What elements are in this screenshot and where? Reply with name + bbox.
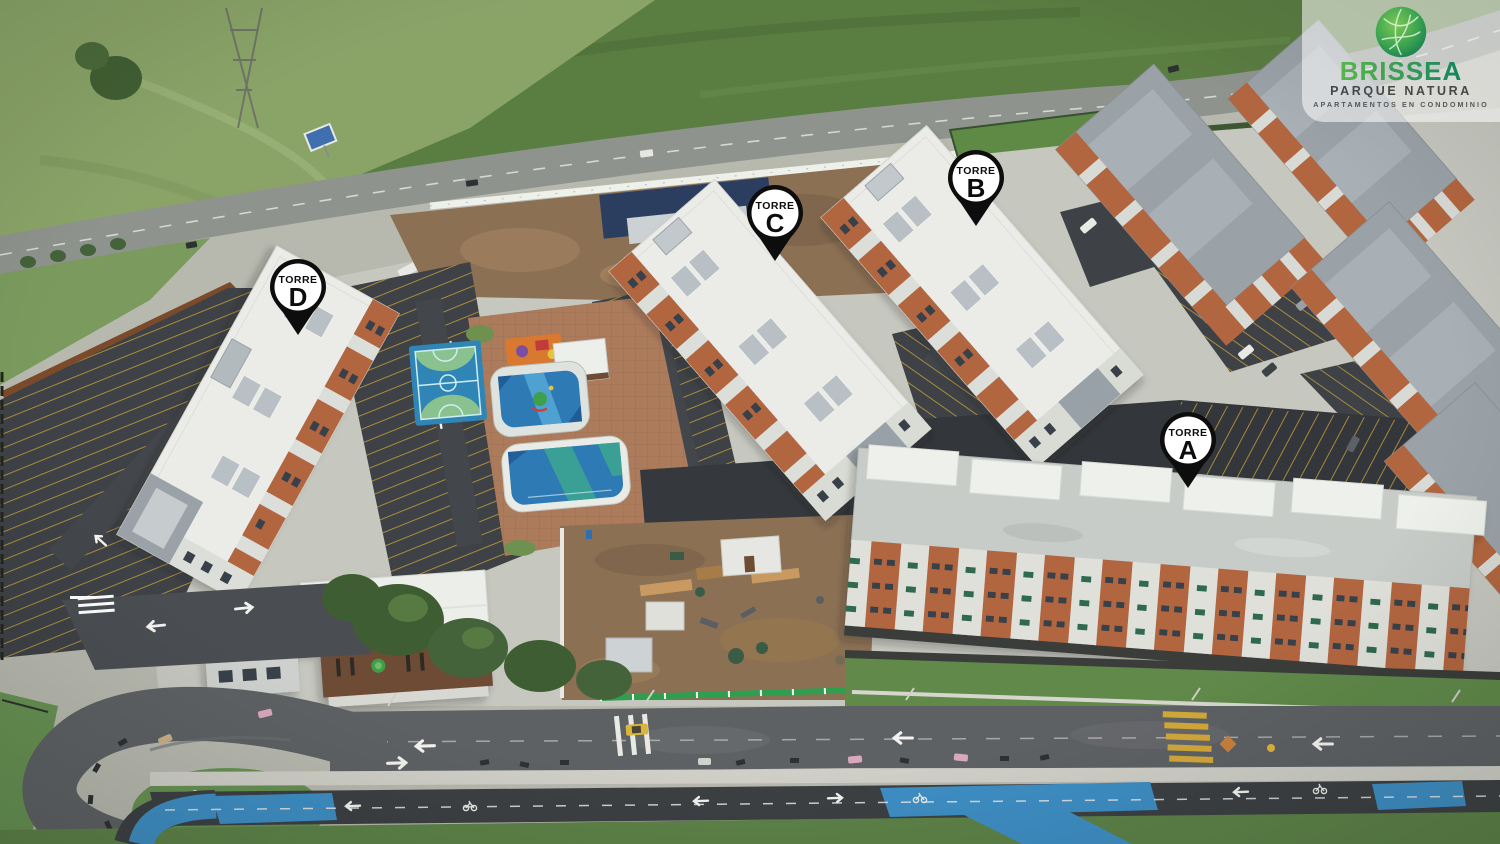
pin-letter: D: [289, 282, 308, 312]
aerial-photo: [0, 0, 1500, 844]
vignette: [0, 0, 1500, 844]
marker-torre-c[interactable]: TORRE C: [743, 183, 807, 265]
brand-subtitle: APARTAMENTOS EN CONDOMINIO: [1313, 100, 1489, 110]
aerial-site-view: TORRE D TORRE C TORRE B TORRE A: [0, 0, 1500, 844]
brand-tagline: PARQUE NATURA: [1330, 84, 1472, 100]
pin-letter: B: [967, 173, 986, 203]
brissea-leaf-logo-icon: [1373, 4, 1429, 60]
marker-torre-b[interactable]: TORRE B: [944, 148, 1008, 230]
brand-name: BRISSEA: [1340, 58, 1463, 84]
brand-logo-card: BRISSEA PARQUE NATURA APARTAMENTOS EN CO…: [1302, 0, 1500, 122]
pin-letter: A: [1179, 435, 1198, 465]
marker-torre-a[interactable]: TORRE A: [1156, 410, 1220, 492]
pin-letter: C: [766, 208, 785, 238]
marker-torre-d[interactable]: TORRE D: [266, 257, 330, 339]
